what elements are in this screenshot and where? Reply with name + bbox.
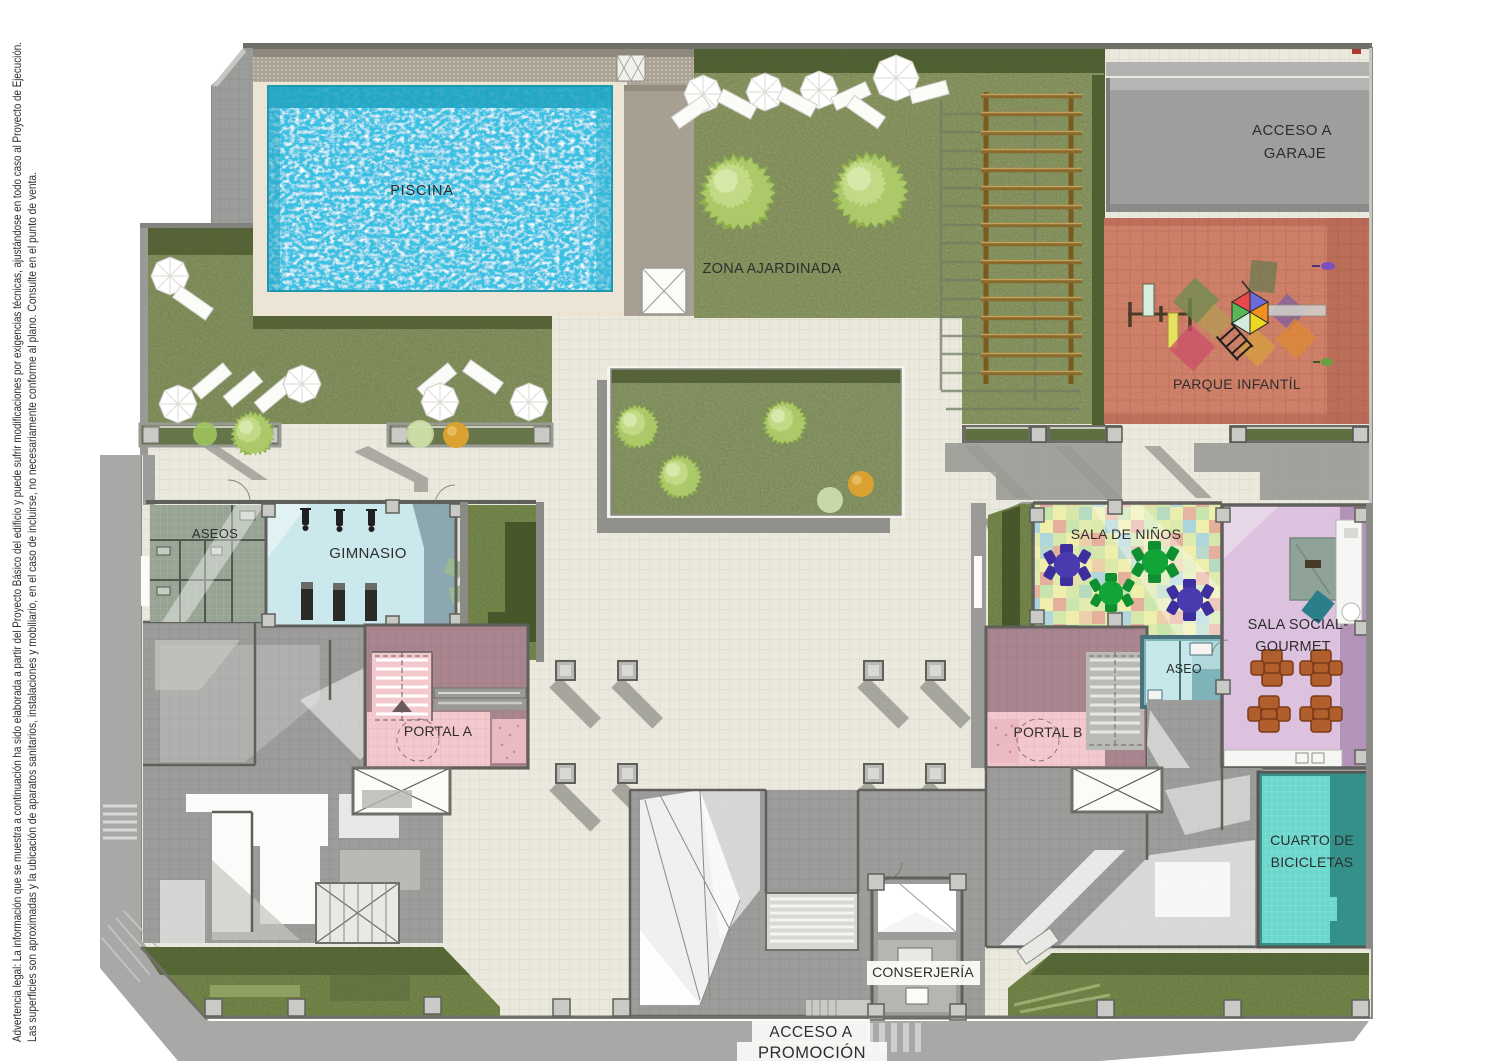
svg-text:GIMNASIO: GIMNASIO <box>329 545 406 562</box>
svg-text:BICICLETAS: BICICLETAS <box>1271 854 1354 870</box>
svg-text:PROMOCIÓN: PROMOCIÓN <box>758 1043 866 1061</box>
svg-text:ACCESO A: ACCESO A <box>769 1024 852 1041</box>
svg-text:Las superficies son aproximada: Las superficies son aproximadas y la ubi… <box>25 172 39 1042</box>
svg-text:PORTAL B: PORTAL B <box>1013 724 1082 740</box>
svg-text:CONSERJERÍA: CONSERJERÍA <box>872 964 974 980</box>
svg-text:ZONA AJARDINADA: ZONA AJARDINADA <box>702 261 841 277</box>
svg-text:GOURMET: GOURMET <box>1255 639 1331 655</box>
svg-text:ASEOS: ASEOS <box>192 526 238 541</box>
svg-text:ACCESO A: ACCESO A <box>1252 122 1332 139</box>
svg-text:PARQUE INFANTÍL: PARQUE INFANTÍL <box>1173 376 1301 392</box>
svg-text:Advertencia legal: La informac: Advertencia legal: La información que se… <box>10 42 24 1042</box>
svg-text:CUARTO DE: CUARTO DE <box>1270 832 1354 848</box>
svg-text:SALA DE NIÑOS: SALA DE NIÑOS <box>1071 526 1182 542</box>
svg-text:PISCINA: PISCINA <box>390 183 454 199</box>
svg-text:ASEO: ASEO <box>1166 662 1202 676</box>
svg-text:PORTAL A: PORTAL A <box>404 723 473 739</box>
svg-text:SALA SOCIAL-: SALA SOCIAL- <box>1248 617 1349 633</box>
svg-text:GARAJE: GARAJE <box>1264 145 1326 162</box>
